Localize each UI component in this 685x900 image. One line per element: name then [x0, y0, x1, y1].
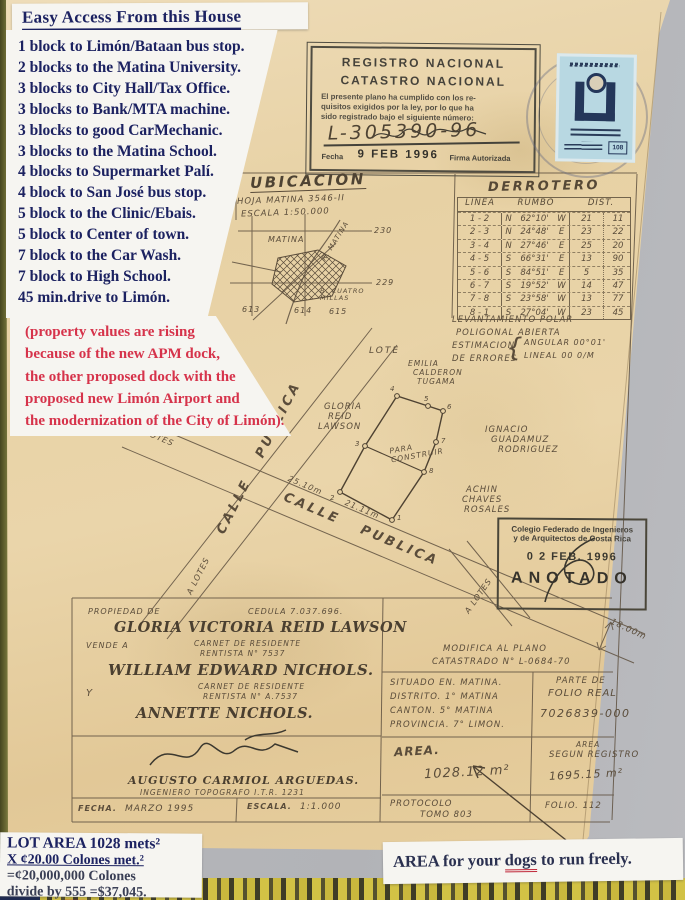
minimap-grid-230: 230	[374, 226, 392, 235]
list-line: 2 blocks to the Matina University.	[18, 58, 298, 79]
minimap-grid-229: 229	[376, 278, 394, 287]
derrotero-cell: 27°46'	[515, 240, 554, 252]
fiscal-stamp-value: 108	[608, 141, 627, 154]
derrotero-row: 3 - 4N27°46'E2520	[458, 239, 630, 252]
derrotero-row: 5 - 6S84°51'E535	[458, 266, 630, 279]
carnet1-line: RENTISTA N° 7537	[200, 649, 285, 658]
vertex-number: 3	[355, 440, 360, 448]
neighbor-line: ROSALES	[464, 505, 510, 515]
derrotero-cell: 25	[570, 240, 604, 252]
derrotero-cell: E	[554, 240, 570, 252]
buyer1-name: WILLIAM EDWARD NICHOLS.	[108, 661, 374, 679]
derrotero-cell: 20	[604, 240, 632, 252]
minimap-grid-615: 615	[329, 307, 347, 316]
fiscal-stamp-text-line	[571, 129, 621, 132]
derrotero-cell: 24°48'	[515, 226, 554, 238]
lot-area-line3: =¢20,000,000 Colones	[0, 868, 202, 885]
y-label: Y	[86, 688, 93, 699]
registro-body-line: quisitos exigidos por la ley, por lo que…	[321, 102, 474, 113]
derrotero-cell: E	[554, 267, 570, 279]
list-line: 3 blocks to City Hall/Tax Office.	[18, 79, 298, 100]
list-line: the modernization of the City of Limón).	[25, 410, 300, 432]
list-line: 1 block to Limón/Bataan bus stop.	[18, 37, 298, 58]
vertex-number: 4	[390, 385, 395, 393]
derrotero-header-row: LINEA RUMBO DIST.	[457, 197, 631, 211]
ubicacion-title: UBICACION	[250, 170, 366, 193]
derrotero-title: DERROTERO	[457, 177, 631, 195]
lot-area-divisor: 555	[65, 885, 86, 900]
colegio-line2: y de Arquitectos de Costa Rica	[499, 533, 645, 543]
neighbor-line: RODRIGUEZ	[498, 445, 559, 455]
derrotero-row: 6 - 7S19°52'W1447	[458, 279, 630, 292]
derrotero-cell: 23	[570, 226, 604, 238]
error-angular: ANGULAR 00°01'	[524, 338, 606, 347]
derrotero-cell: W	[554, 280, 570, 292]
derrotero-header: RUMBO	[502, 198, 570, 211]
emblem-circle	[586, 73, 606, 93]
derrotero-cell: 7 - 8	[458, 293, 502, 305]
fiscal-stamp-text-line	[571, 134, 621, 137]
escala-value: 1:1.000	[300, 802, 342, 812]
derrotero-cell: E	[554, 253, 570, 265]
derrotero-cell: E	[554, 226, 570, 238]
topografo-emblem-icon	[575, 75, 616, 122]
error-brace: {	[506, 333, 524, 363]
folio-real-number: 7026839-000	[540, 707, 630, 720]
derrotero-row: 7 - 8S23°58'W1377	[458, 292, 630, 305]
derrotero-cell: 47	[604, 280, 632, 292]
canton-line: CANTON. 5° MATINA	[390, 706, 494, 716]
derrotero-cell: 14	[570, 280, 604, 292]
provincia-line: PROVINCIA. 7° LIMON.	[390, 720, 505, 730]
area-registro-label1: AREA	[576, 740, 600, 749]
minimap-grid-614: 614	[294, 306, 312, 315]
dogs-note-pre: AREA for your	[393, 850, 505, 871]
derrotero-cell: 22	[604, 226, 632, 238]
derrotero-cell: W	[554, 213, 570, 225]
owner-name: GLORIA VICTORIA REID LAWSON	[114, 619, 407, 636]
derrotero-cell: 2 - 3	[458, 226, 502, 238]
derrotero-row: 2 - 3N24°48'E2322	[458, 225, 630, 238]
dogs-note-text: AREA for your dogs to run freely.	[383, 838, 683, 872]
owner-parcel-line: LAWSON	[318, 422, 362, 432]
derrotero-cell: 13	[570, 293, 604, 305]
colegio-anotado-stamp: Colegio Federado de Ingenieros y de Arqu…	[497, 517, 648, 610]
vertex-number: 8	[429, 467, 434, 475]
dogs-note-sticker: AREA for your dogs to run freely.	[383, 838, 684, 884]
area-registro-label2: SEGUN REGISTRO	[549, 750, 639, 760]
emblem-bottom-bar	[575, 113, 615, 122]
vertex-number: 6	[447, 403, 452, 411]
engineer-signature	[150, 730, 298, 765]
fecha-value: MARZO 1995	[125, 804, 194, 814]
folio-real-label: FOLIO REAL	[548, 688, 617, 699]
lote-label: LOTE	[369, 346, 400, 356]
derrotero-cell: 45	[604, 307, 632, 319]
protocolo-tomo: TOMO 803	[420, 810, 473, 820]
derrotero-cell: 66°31'	[515, 253, 554, 265]
derrotero-cell: 5	[570, 267, 604, 279]
neighbor-line: ACHIN	[466, 485, 510, 495]
distrito-line: DISTRITO. 1° MATINA	[390, 692, 499, 702]
neighbor-line: CHAVES	[462, 495, 510, 505]
lot-area-line1: LOT AREA 1028 mets²	[0, 832, 202, 853]
lot-area-line4-pre: divide by	[7, 884, 65, 899]
neighbor-name-right: IGNACIO GUADAMUZ RODRIGUEZ	[485, 425, 559, 455]
lot-area-line4: divide by 555 =$37,045.	[0, 884, 202, 900]
derrotero-cell: 35	[604, 267, 632, 279]
fecha-date-stamp: 9 FEB 1996	[357, 148, 438, 161]
derrotero-cell: 62°10'	[515, 213, 554, 225]
title-note-sticker: Easy Access From this House	[12, 2, 308, 31]
firma-label: Firma Autorizada	[449, 153, 510, 163]
derrotero-cell: 6 - 7	[458, 280, 502, 292]
neighbor-line: IGNACIO	[485, 425, 559, 435]
derrotero-cell: 19°52'	[515, 280, 554, 292]
engineer-title: INGENIERO TOPOGRAFO I.T.R. 1231	[140, 788, 305, 797]
protocolo-label: PROTOCOLO	[390, 799, 452, 809]
derrotero-cell: 84°51'	[515, 267, 554, 279]
derrotero-row: 1 - 2N62°10'W2111	[458, 212, 630, 225]
derrotero-cell: S	[502, 267, 515, 279]
registro-body-line: El presente plano ha cumplido con los re…	[321, 92, 476, 103]
owner-parcel-label: GLORIA REID LAWSON	[318, 402, 362, 432]
owner-parcel-line: REID	[328, 412, 362, 422]
carnet2-line: RENTISTA N° A.7537	[203, 692, 298, 701]
minimap-town-label: MATINA	[268, 235, 305, 244]
fecha-label: Fecha	[321, 152, 343, 161]
folio-value: FOLIO. 112	[545, 801, 602, 811]
derrotero-cell: 23°58'	[515, 293, 554, 305]
derrotero-cell: 1 - 2	[458, 213, 502, 225]
plano-number: L-305390-96	[328, 119, 481, 145]
neighbor-line: EMILIA	[408, 359, 463, 368]
derrotero-cell: 21	[570, 213, 604, 225]
photo-background: REGISTRO NACIONAL CATASTRO NACIONAL El p…	[0, 0, 685, 900]
lot-area-note-sticker: LOT AREA 1028 mets² X ¢20.00 Colones met…	[0, 832, 202, 897]
derrotero-cell: 13	[570, 253, 604, 265]
vertex-number: 5	[424, 395, 429, 403]
modifica-line2: CATASTRADO N° L-0684-70	[432, 657, 571, 667]
dogs-underlined-word: dogs	[505, 850, 537, 872]
title-note-text: Easy Access From this House	[22, 7, 241, 32]
derrotero-cell: 5 - 6	[458, 267, 502, 279]
catastro-title: CATASTRO NACIONAL	[312, 73, 534, 89]
neighbor-line: CALDERON	[413, 368, 463, 377]
anotado-label: ANOTADO	[499, 569, 645, 588]
modifica-line1: MODIFICA AL PLANO	[443, 644, 547, 654]
engineer-name: AUGUSTO CARMIOL ARGUEDAS.	[128, 774, 359, 787]
derrotero-cell: 4 - 5	[458, 253, 502, 265]
cedula-value: CEDULA 7.037.696.	[248, 607, 343, 616]
derrotero-header: DIST.	[570, 198, 632, 211]
fiscal-stamp: 108	[555, 53, 637, 162]
vertex-number: 2	[330, 494, 335, 502]
derrotero-cell: 77	[604, 293, 632, 305]
escala-label: ESCALA.	[247, 802, 292, 811]
minimap-village-label: B. CUATRO MILLAS	[320, 288, 366, 302]
fiscal-stamp-header-lines	[570, 63, 620, 68]
situado-line: SITUADO EN. MATINA.	[390, 678, 502, 688]
derrotero-cell: S	[502, 293, 515, 305]
area-label: AREA.	[394, 743, 440, 759]
vertex-number: 1	[397, 514, 402, 522]
vertex-number: 7	[441, 437, 446, 445]
derrotero-header: LINEA	[458, 198, 502, 211]
levantamiento-line: LEVANTAMIENTO POLAR	[452, 315, 573, 325]
derrotero-cell: 90	[604, 253, 632, 265]
derrotero-cell: N	[502, 213, 515, 225]
vende-label: VENDE A	[86, 641, 129, 650]
registro-nacional-stamp: REGISTRO NACIONAL CATASTRO NACIONAL El p…	[309, 46, 536, 173]
derrotero-cell: 23	[570, 307, 604, 319]
registro-title: REGISTRO NACIONAL	[312, 55, 534, 71]
carnet1-line: CARNET DE RESIDENTE	[194, 639, 301, 648]
parte-de-line: PARTE DE	[556, 676, 606, 686]
derrotero-cell: S	[502, 253, 515, 265]
derrotero-cell: S	[502, 280, 515, 292]
derrotero-cell: N	[502, 226, 515, 238]
derrotero-table: DERROTERO LINEA RUMBO DIST. 1 - 2N62°10'…	[457, 179, 631, 320]
derrotero-row: 4 - 5S66°31'E1390	[458, 252, 630, 265]
list-line: proposed new Limón Airport and	[25, 388, 300, 410]
colegio-date-stamp: 0 2 FEB. 1996	[499, 550, 645, 563]
carnet2-line: CARNET DE RESIDENTE	[198, 682, 305, 691]
derrotero-cell: N	[502, 240, 515, 252]
derrotero-cell: 11	[604, 213, 632, 225]
lot-area-line4-post: =$37,045.	[86, 885, 147, 900]
propiedad-label: PROPIEDAD DE	[88, 607, 160, 616]
error-lineal: LINEAL 00 0/M	[524, 351, 595, 360]
fecha-label: FECHA.	[78, 804, 117, 813]
derrotero-cell: 3 - 4	[458, 240, 502, 252]
lot-area-line2: X ¢20.00 Colones met.²	[0, 852, 202, 869]
list-line: 3 blocks to Bank/MTA machine.	[18, 100, 298, 121]
derrotero-body: 1 - 2N62°10'W21112 - 3N24°48'E23223 - 4N…	[457, 211, 631, 320]
neighbor-name-top: EMILIA CALDERON TUGAMA	[408, 359, 463, 386]
fiscal-stamp-footer-lines	[564, 141, 602, 150]
dogs-note-post: to run freely.	[537, 849, 632, 869]
neighbor-name-bottom: ACHIN CHAVES ROSALES	[462, 485, 510, 515]
buyer2-name: ANNETTE NICHOLS.	[136, 705, 313, 722]
owner-parcel-line: GLORIA	[324, 402, 362, 412]
minimap-grid-613: 613	[242, 305, 260, 314]
derrotero-cell: W	[554, 293, 570, 305]
neighbor-line: GUADAMUZ	[491, 435, 559, 445]
neighbor-line: TUGAMA	[417, 377, 463, 386]
